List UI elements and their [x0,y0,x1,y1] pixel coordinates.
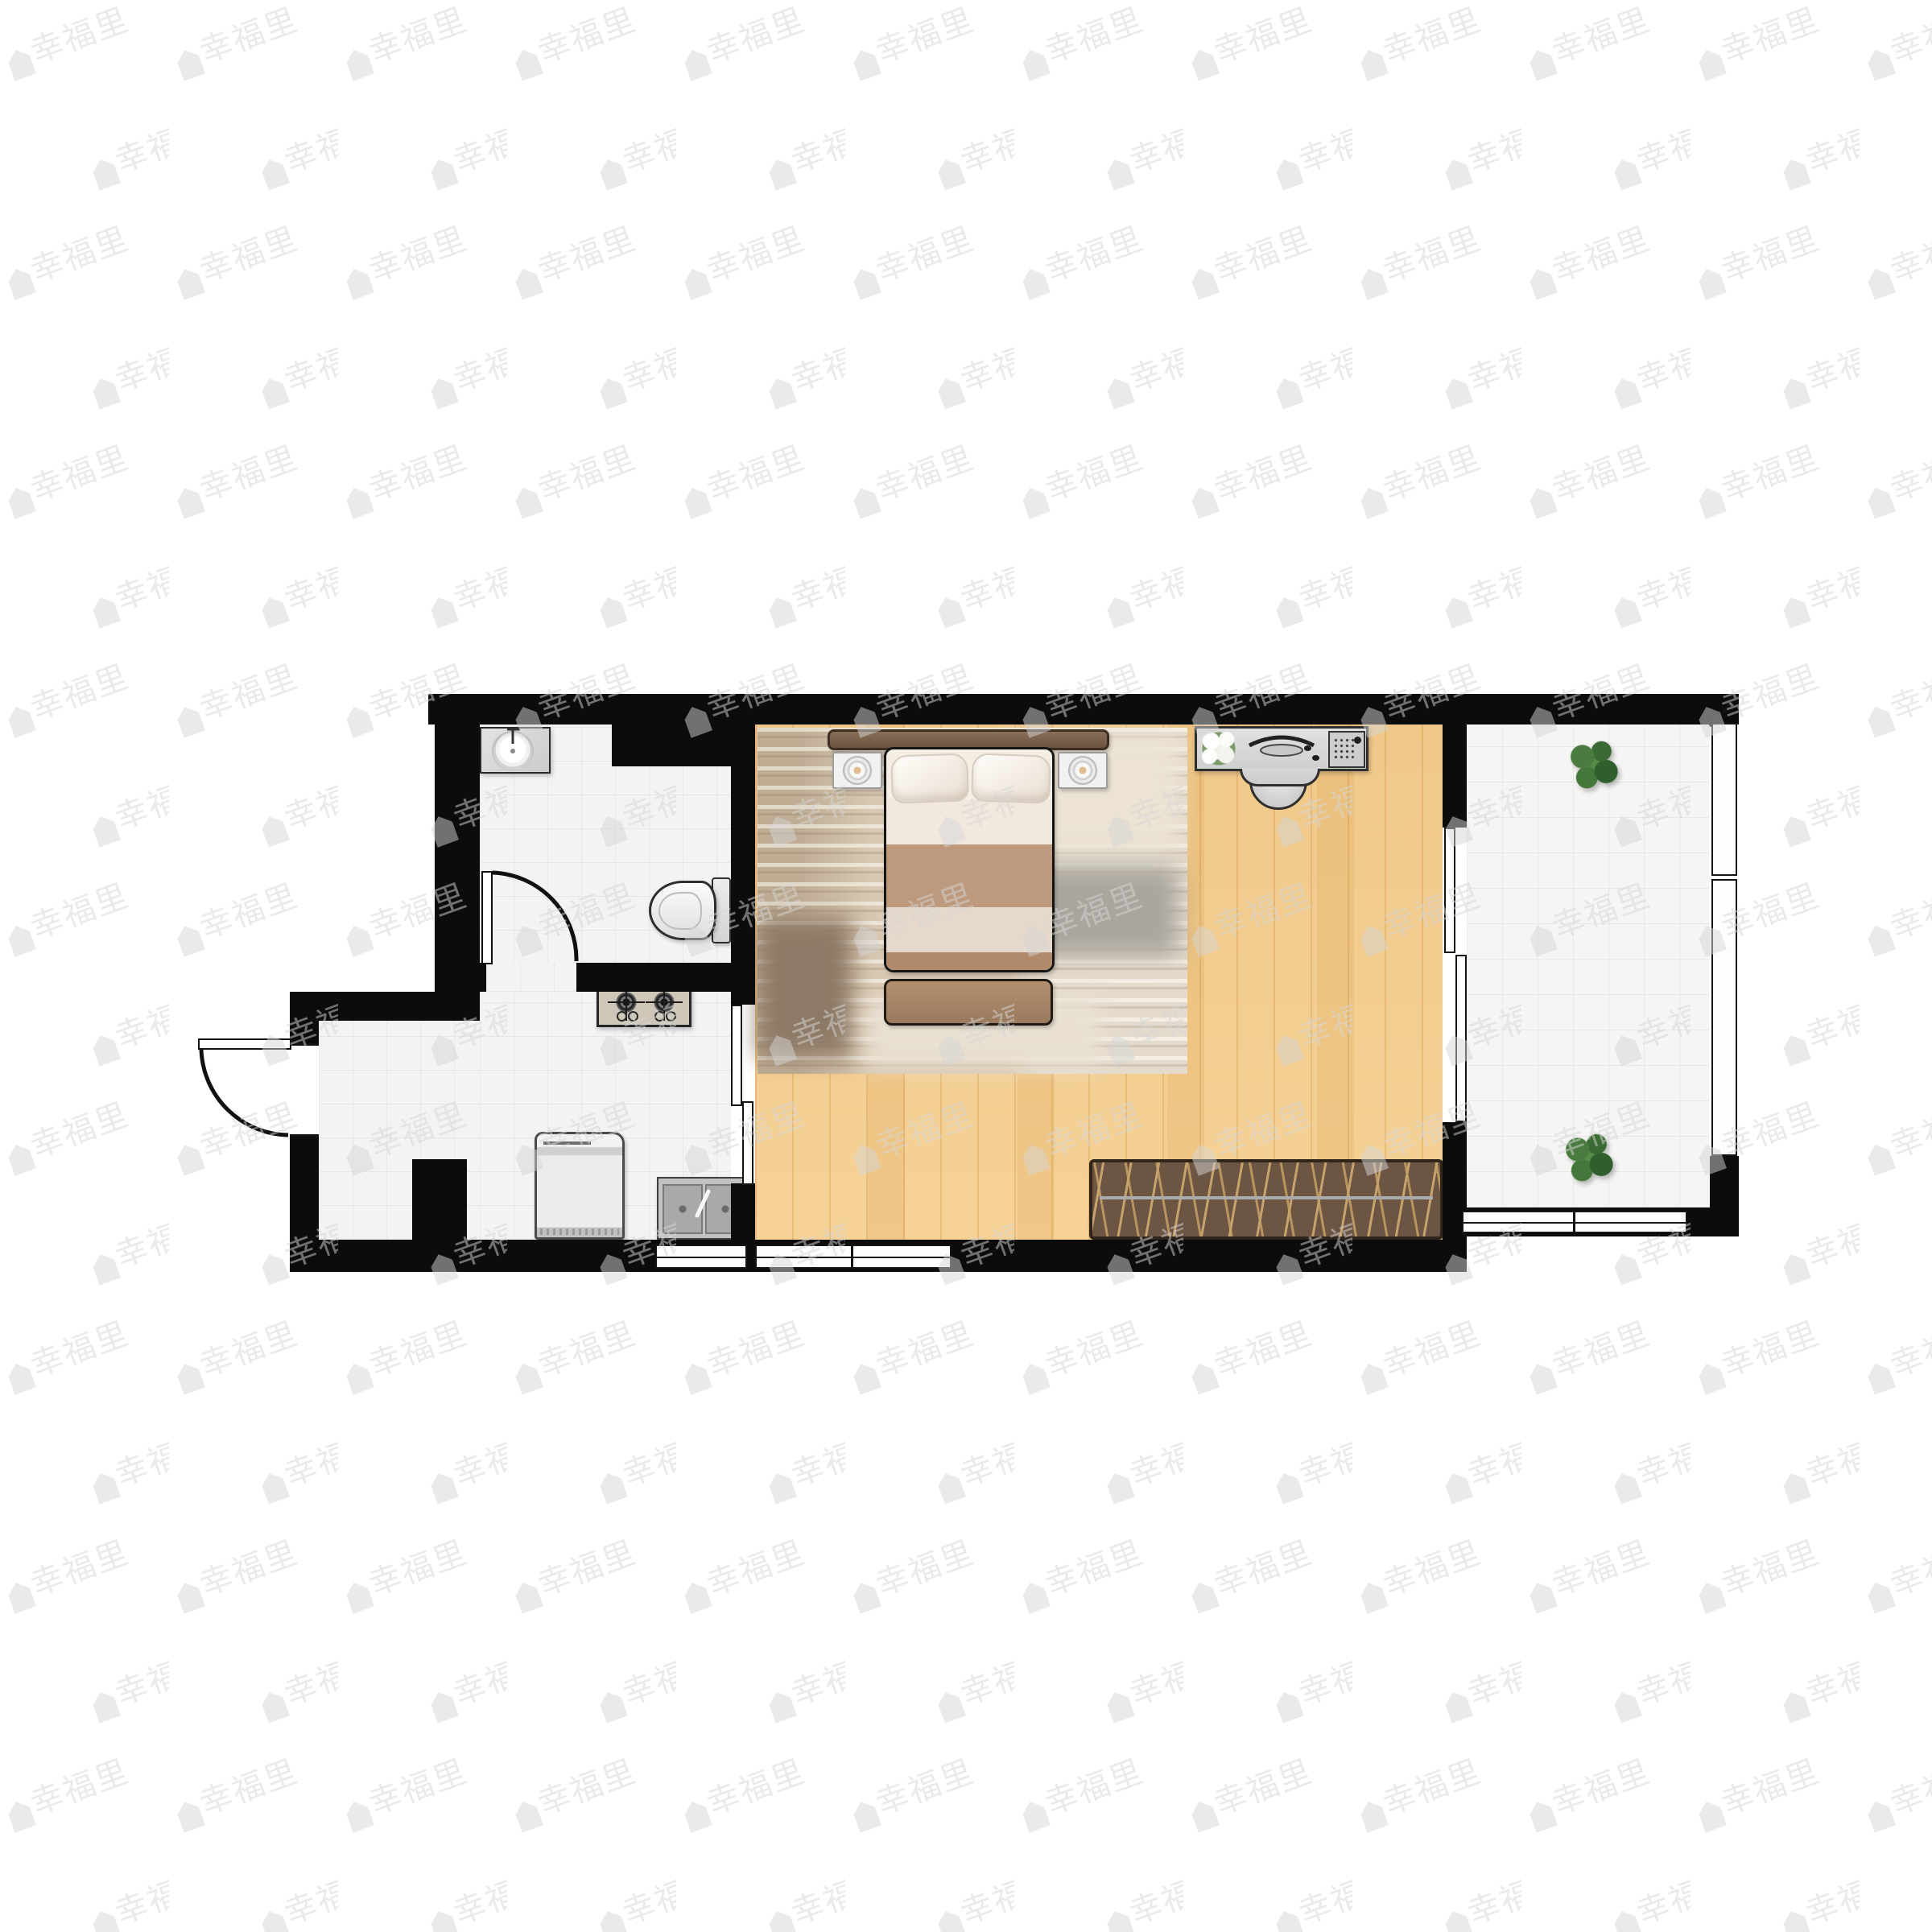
floor-plan: 幸福里 幸福里 [0,0,1932,1932]
monitor-base [1261,745,1302,756]
balcony-corner-chamfer [1710,697,1737,726]
kitchen-faucet-icon [697,1191,708,1216]
vanity-faucet-icon [507,729,520,744]
bathroom-door-arc [493,873,576,961]
vector-details [0,0,1932,1932]
entry-door-arc [201,1050,288,1135]
